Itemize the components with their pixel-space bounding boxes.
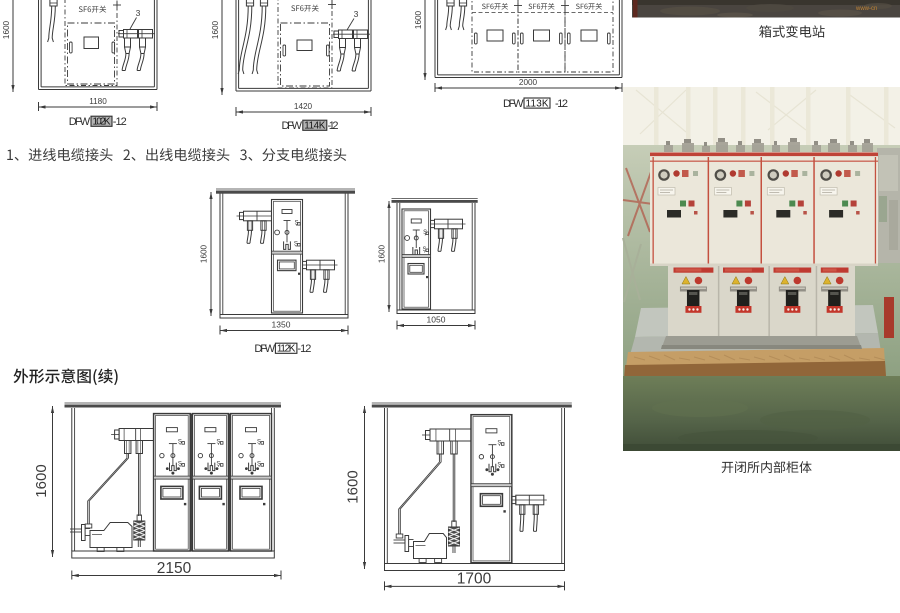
svg-text:DFW: DFW [69, 116, 91, 128]
svg-text:Ş: Ş [257, 440, 261, 446]
svg-text:114K: 114K [304, 121, 325, 132]
svg-text:1600: 1600 [200, 244, 209, 263]
svg-text:113K: 113K [526, 98, 549, 109]
svg-text:2150: 2150 [157, 560, 192, 577]
svg-text:-12: -12 [113, 116, 127, 128]
svg-text:DFW: DFW [282, 120, 303, 132]
svg-text:3: 3 [354, 9, 359, 19]
svg-text:Ş: Ş [178, 462, 182, 468]
svg-text:1600: 1600 [2, 20, 11, 39]
svg-text:Ş: Ş [178, 440, 182, 446]
svg-text:1600: 1600 [211, 20, 220, 39]
svg-text:102K: 102K [93, 117, 111, 128]
svg-text:1050: 1050 [427, 315, 446, 325]
svg-text:-12: -12 [328, 120, 339, 132]
svg-text:Ş: Ş [497, 463, 501, 469]
svg-text:www-cn: www-cn [855, 6, 877, 12]
svg-text:Ş: Ş [216, 440, 220, 446]
svg-text:2000: 2000 [519, 78, 538, 87]
svg-text:1600: 1600 [33, 464, 50, 497]
svg-text:1600: 1600 [414, 10, 423, 29]
svg-text:1180: 1180 [89, 97, 107, 106]
svg-text:Ş: Ş [216, 462, 220, 468]
svg-text:1600: 1600 [345, 470, 362, 503]
svg-text:1420: 1420 [294, 102, 313, 111]
svg-text:3: 3 [136, 8, 141, 18]
svg-text:112K: 112K [277, 344, 296, 355]
svg-text:Ş: Ş [423, 230, 427, 236]
svg-text:DFW: DFW [503, 98, 524, 110]
svg-text:-12: -12 [555, 98, 568, 110]
svg-text:Ş: Ş [257, 462, 261, 468]
svg-text:1350: 1350 [272, 320, 291, 330]
svg-text:-12: -12 [297, 343, 311, 355]
svg-text:1700: 1700 [457, 571, 492, 588]
svg-text:1600: 1600 [378, 244, 387, 263]
svg-text:DFW: DFW [254, 343, 275, 355]
svg-text:Ş: Ş [497, 441, 501, 447]
